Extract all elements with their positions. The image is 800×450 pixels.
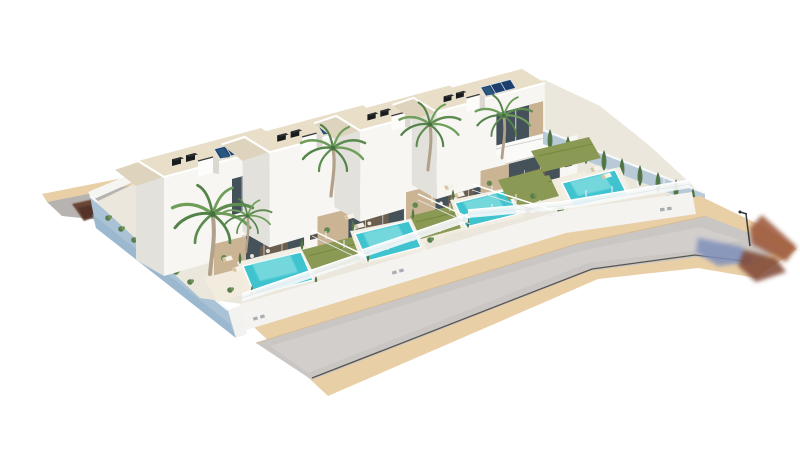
render-canvas (0, 0, 800, 450)
property-render (0, 0, 800, 450)
